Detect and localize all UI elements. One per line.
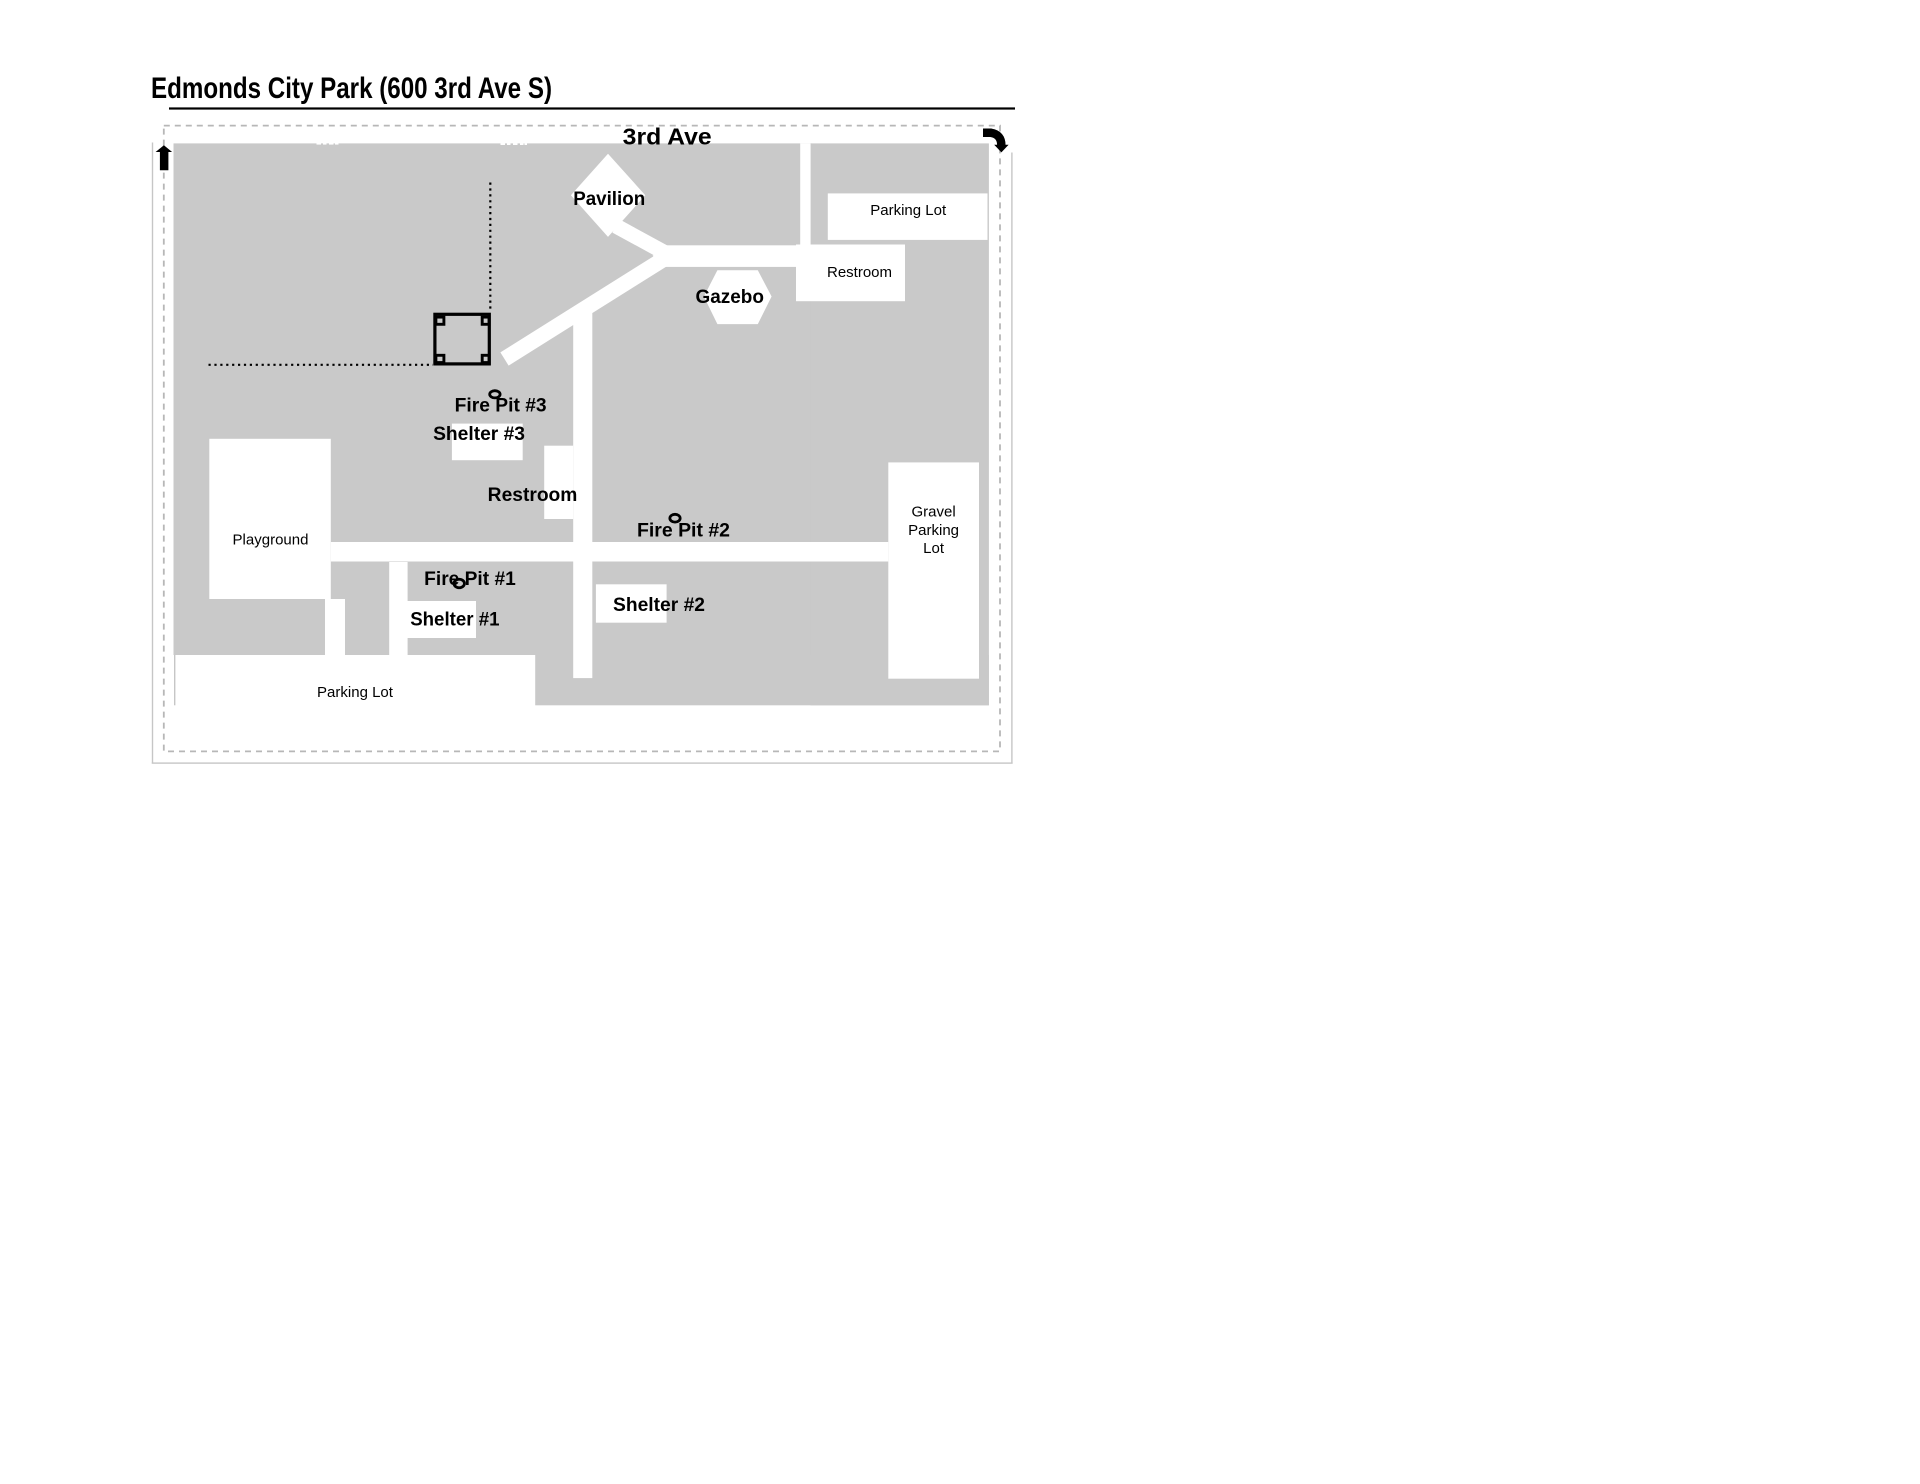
svg-text:Restroom: Restroom (827, 264, 892, 281)
svg-text:Edmonds City Park (600 3rd Ave: Edmonds City Park (600 3rd Ave S) (151, 72, 552, 105)
svg-text:Restroom: Restroom (488, 485, 578, 506)
svg-text:Parking: Parking (908, 522, 959, 539)
svg-text:Lot: Lot (923, 540, 945, 557)
svg-text:Shelter #3: Shelter #3 (433, 424, 525, 445)
svg-text:Fire Pit #2: Fire Pit #2 (637, 521, 730, 542)
svg-text:Gazebo: Gazebo (696, 287, 764, 308)
svg-text:Pavilion: Pavilion (573, 189, 645, 210)
svg-text:3rd Ave: 3rd Ave (623, 124, 712, 150)
svg-text:Fire Pit #1: Fire Pit #1 (424, 569, 516, 590)
svg-text:Fire Pit #3: Fire Pit #3 (455, 395, 547, 416)
svg-text:Parking Lot: Parking Lot (870, 202, 947, 219)
svg-text:Playground: Playground (233, 531, 309, 548)
svg-text:Shelter #1: Shelter #1 (410, 610, 500, 631)
svg-text:Shelter #2: Shelter #2 (613, 595, 705, 616)
svg-text:Gravel: Gravel (912, 504, 956, 521)
svg-text:Parking Lot: Parking Lot (317, 684, 394, 701)
